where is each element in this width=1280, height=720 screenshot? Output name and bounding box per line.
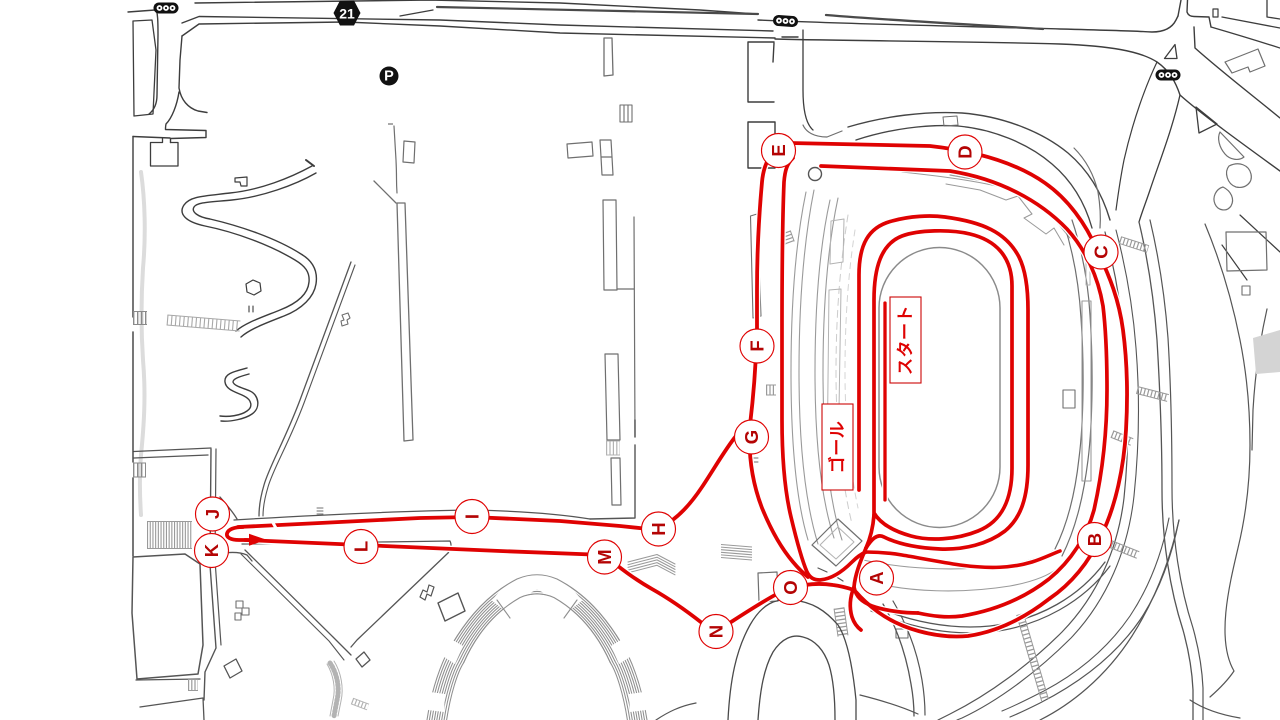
svg-text:K: K [201, 543, 222, 557]
svg-text:D: D [955, 145, 976, 158]
svg-text:M: M [594, 549, 615, 564]
svg-text:F: F [747, 340, 768, 351]
svg-text:L: L [351, 541, 372, 552]
svg-text:N: N [706, 625, 727, 638]
svg-text:O: O [780, 580, 801, 594]
svg-text:G: G [741, 430, 762, 444]
svg-text:E: E [768, 144, 789, 156]
svg-text:H: H [648, 522, 669, 535]
svg-text:B: B [1084, 533, 1105, 546]
svg-text:P: P [384, 69, 394, 85]
svg-text:C: C [1091, 245, 1112, 258]
svg-text:I: I [462, 514, 483, 519]
svg-text:J: J [202, 509, 223, 519]
svg-text:21: 21 [339, 6, 355, 22]
svg-text:ゴール: ゴール [827, 421, 847, 474]
svg-text:スタート: スタート [896, 305, 915, 375]
svg-text:A: A [866, 571, 887, 584]
